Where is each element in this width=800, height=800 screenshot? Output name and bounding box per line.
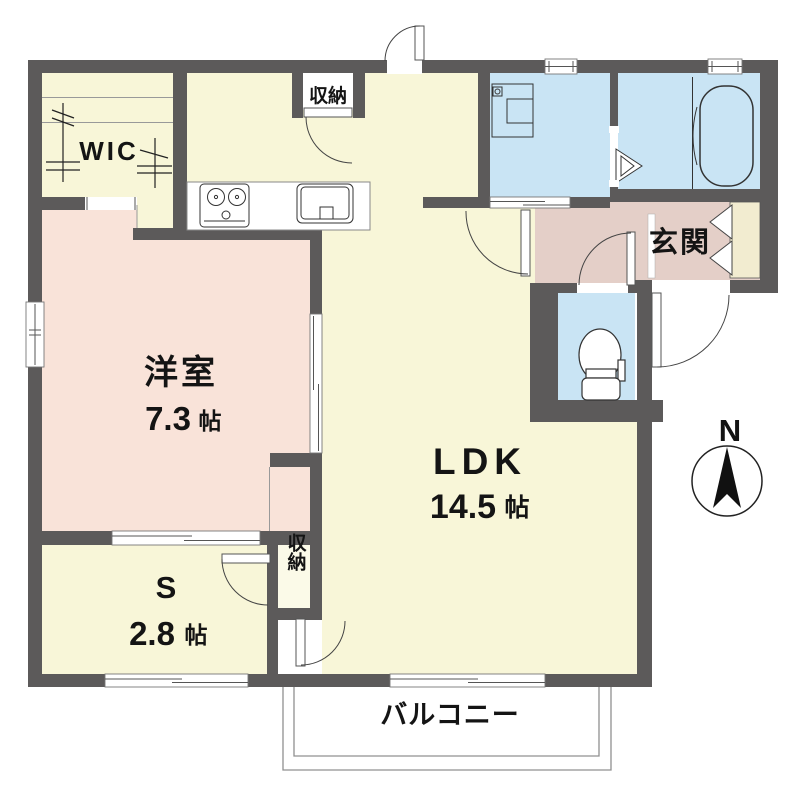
western-room-size-unit: 帖	[199, 408, 222, 434]
service-door-opening	[387, 59, 422, 74]
entrance-door-opening	[652, 280, 730, 293]
room-service	[42, 531, 267, 674]
closet-top-label: 収納	[309, 84, 347, 107]
floor-plan-svg: N WIC 収納 収納 洋室 7.3 帖 LDK 14.5 帖 S 2.8 帖 …	[0, 0, 800, 800]
sliding-door-western-ldk	[310, 314, 322, 453]
window-bathroom	[708, 59, 742, 74]
window-western	[26, 302, 44, 367]
jamb-mark	[609, 180, 619, 187]
room-bathroom	[618, 73, 760, 189]
closet-bottom-label: 収納	[285, 533, 307, 571]
toilet-door-opening	[577, 283, 628, 293]
window-service-room	[105, 674, 248, 687]
wic-opening	[85, 197, 137, 210]
service-room-size: 2.8	[129, 615, 175, 652]
entrance-label: 玄関	[649, 225, 711, 259]
jamb-mark	[609, 126, 619, 133]
service-room-size-unit: 帖	[185, 622, 208, 648]
floor-plan: N WIC 収納 収納 洋室 7.3 帖 LDK 14.5 帖 S 2.8 帖 …	[0, 0, 800, 800]
balcony-label: バルコニー	[380, 700, 519, 730]
ldk-size: 14.5	[430, 488, 496, 526]
ldk-label: LDK	[433, 441, 527, 482]
wic-label: WIC	[79, 136, 139, 166]
room-washroom	[490, 73, 610, 198]
window-ldk-balcony	[390, 674, 545, 687]
service-room-label: S	[156, 570, 177, 605]
window-washroom	[545, 59, 577, 74]
sliding-door-washroom	[490, 197, 570, 208]
western-room-label: 洋室	[144, 353, 218, 392]
western-room-size: 7.3	[145, 400, 191, 437]
sliding-door-western-service	[112, 531, 260, 545]
compass-north-label: N	[719, 413, 741, 448]
ldk-size-unit: 帖	[504, 494, 529, 522]
